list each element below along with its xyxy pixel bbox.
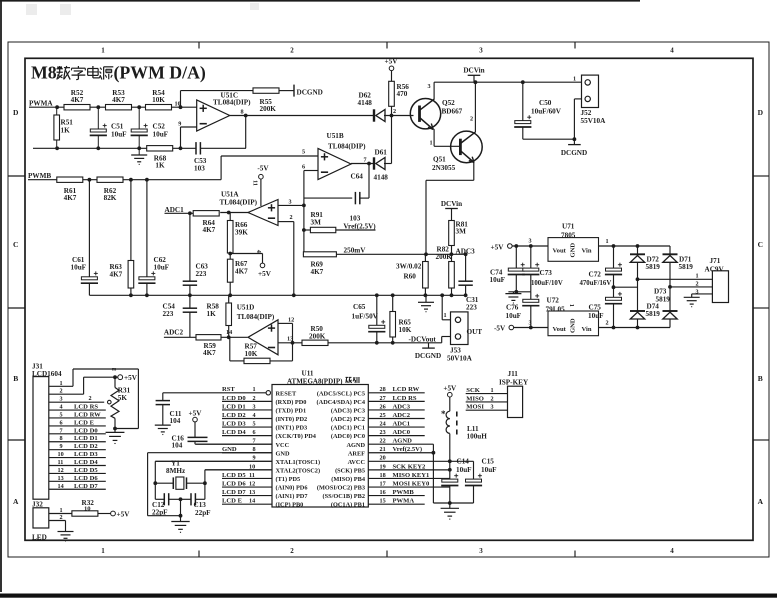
svg-text:100uF/10V: 100uF/10V xyxy=(531,280,563,287)
svg-text:C75: C75 xyxy=(589,303,602,311)
svg-text:1: 1 xyxy=(253,386,256,393)
svg-text:VCC: VCC xyxy=(276,442,290,449)
svg-text:LED: LED xyxy=(32,534,47,542)
svg-text:C73: C73 xyxy=(540,269,553,277)
svg-text:4K7: 4K7 xyxy=(71,96,84,104)
svg-text:Vref(2.5V): Vref(2.5V) xyxy=(343,222,376,230)
svg-text:4K7: 4K7 xyxy=(112,96,125,104)
svg-text:2: 2 xyxy=(60,514,63,521)
svg-text:U51B: U51B xyxy=(327,132,344,140)
svg-text:DCGND: DCGND xyxy=(415,352,441,360)
svg-text:(T1) PD5: (T1) PD5 xyxy=(276,476,301,483)
svg-text:+5V: +5V xyxy=(189,410,203,418)
svg-text:250mV: 250mV xyxy=(344,246,367,254)
svg-text:2: 2 xyxy=(470,116,473,123)
svg-text:4K7: 4K7 xyxy=(110,271,123,279)
svg-text:-DCVout: -DCVout xyxy=(409,336,437,344)
svg-text:ADC2: ADC2 xyxy=(164,329,184,337)
svg-text:SCK KEY2: SCK KEY2 xyxy=(393,463,426,470)
svg-text:C: C xyxy=(13,240,18,249)
svg-text:MISO: MISO xyxy=(466,395,484,402)
svg-text:C50: C50 xyxy=(539,99,552,107)
svg-text:LCD E: LCD E xyxy=(74,419,95,426)
svg-text:LCD D2: LCD D2 xyxy=(222,412,246,419)
svg-text:10: 10 xyxy=(175,100,181,107)
svg-text:U11: U11 xyxy=(302,370,314,378)
svg-text:ADC3: ADC3 xyxy=(393,403,411,410)
svg-text:Vref(2.5V): Vref(2.5V) xyxy=(393,446,423,453)
svg-text:16: 16 xyxy=(380,489,386,496)
svg-text:10: 10 xyxy=(58,451,64,458)
svg-text:Vin: Vin xyxy=(582,247,592,254)
svg-text:DCVin: DCVin xyxy=(463,67,484,75)
svg-text:104: 104 xyxy=(170,417,181,425)
svg-text:(XCK/T0) PD4: (XCK/T0) PD4 xyxy=(276,433,317,440)
svg-text:3: 3 xyxy=(479,47,483,55)
svg-text:LCD D3: LCD D3 xyxy=(222,420,246,427)
svg-text:GND: GND xyxy=(276,450,290,457)
svg-text:XTAL1(TOSC1): XTAL1(TOSC1) xyxy=(276,459,321,466)
svg-text:1K: 1K xyxy=(207,310,217,318)
svg-text:LCD D1: LCD D1 xyxy=(74,435,98,442)
svg-text:LCD D5: LCD D5 xyxy=(222,472,246,479)
svg-text:*: * xyxy=(441,409,446,419)
svg-text:XTAL2(TOSC2): XTAL2(TOSC2) xyxy=(276,467,321,474)
svg-text:3: 3 xyxy=(428,83,431,90)
svg-text:1: 1 xyxy=(101,47,105,55)
svg-text:7: 7 xyxy=(253,438,256,445)
svg-text:3: 3 xyxy=(529,238,532,245)
svg-text:RST: RST xyxy=(222,386,235,393)
svg-text:200K: 200K xyxy=(260,105,277,113)
svg-text:LCD D0: LCD D0 xyxy=(74,427,98,434)
svg-text:26: 26 xyxy=(380,403,386,410)
svg-text:Vout: Vout xyxy=(553,247,567,254)
svg-text:1K: 1K xyxy=(61,127,71,135)
svg-text:2: 2 xyxy=(290,47,294,55)
svg-text:2: 2 xyxy=(290,547,294,555)
svg-text:(PWM D/A): (PWM D/A) xyxy=(114,63,206,84)
svg-text:8: 8 xyxy=(60,435,63,442)
svg-text:PWMB: PWMB xyxy=(28,172,51,180)
svg-text:11: 11 xyxy=(251,180,258,186)
svg-text:13: 13 xyxy=(58,475,64,482)
svg-text:PWMA: PWMA xyxy=(29,100,53,108)
svg-text:3M: 3M xyxy=(456,228,467,236)
svg-text:R60: R60 xyxy=(404,273,417,281)
svg-text:(INT0) PD2: (INT0) PD2 xyxy=(276,416,308,423)
svg-text:3M: 3M xyxy=(311,218,322,226)
svg-text:1: 1 xyxy=(568,304,575,307)
svg-text:+5V: +5V xyxy=(491,243,505,251)
svg-text:10K: 10K xyxy=(399,326,412,334)
svg-text:DCVin: DCVin xyxy=(441,200,462,208)
svg-text:GND: GND xyxy=(570,318,577,333)
svg-text:4K7: 4K7 xyxy=(64,194,77,202)
svg-text:5819: 5819 xyxy=(646,310,661,318)
svg-text:223: 223 xyxy=(163,310,174,318)
svg-text:D: D xyxy=(13,108,19,117)
svg-text:LCD D4: LCD D4 xyxy=(74,459,98,466)
svg-text:7: 7 xyxy=(60,427,63,434)
svg-text:3W/0.02: 3W/0.02 xyxy=(396,263,422,271)
svg-text:C15: C15 xyxy=(482,458,495,466)
svg-text:55V10A: 55V10A xyxy=(581,117,607,125)
svg-text:LCD D4: LCD D4 xyxy=(222,429,246,436)
svg-text:4: 4 xyxy=(253,412,256,419)
svg-text:1: 1 xyxy=(60,380,63,387)
svg-text:14: 14 xyxy=(226,329,232,336)
svg-text:A: A xyxy=(758,497,764,506)
svg-text:TL084(DIP): TL084(DIP) xyxy=(237,313,275,321)
svg-text:ADC1: ADC1 xyxy=(393,420,411,427)
svg-text:200K: 200K xyxy=(436,253,453,261)
svg-text:8: 8 xyxy=(253,446,256,453)
svg-text:D: D xyxy=(758,108,764,117)
svg-text:223: 223 xyxy=(466,303,477,311)
svg-text:LCD D7: LCD D7 xyxy=(222,489,246,496)
svg-text:C72: C72 xyxy=(589,271,602,279)
svg-text:12: 12 xyxy=(249,480,255,487)
svg-text:2: 2 xyxy=(606,319,609,326)
svg-text:MISO KEY1: MISO KEY1 xyxy=(393,472,430,479)
svg-text:200K: 200K xyxy=(309,333,326,341)
svg-text:AVCC: AVCC xyxy=(348,459,366,466)
svg-text:ISP-KEY: ISP-KEY xyxy=(499,378,529,386)
svg-text:LCD D6: LCD D6 xyxy=(74,475,98,482)
svg-text:10uF: 10uF xyxy=(153,131,169,139)
svg-text:(ADC1) PC1: (ADC1) PC1 xyxy=(331,425,365,432)
svg-text:B: B xyxy=(758,374,763,383)
svg-text:LCD D6: LCD D6 xyxy=(222,480,246,487)
svg-text:4K7: 4K7 xyxy=(203,349,216,357)
svg-text:17: 17 xyxy=(380,480,386,487)
svg-text:(SS/OC1B) PB2: (SS/OC1B) PB2 xyxy=(322,493,365,500)
svg-text:5K: 5K xyxy=(118,394,128,402)
svg-text:TL084(DIP): TL084(DIP) xyxy=(328,142,366,150)
svg-text:103: 103 xyxy=(350,215,361,223)
svg-text:22: 22 xyxy=(380,438,386,445)
svg-text:3: 3 xyxy=(60,396,63,403)
svg-text:10uF: 10uF xyxy=(111,131,127,139)
svg-text:J53: J53 xyxy=(450,347,461,355)
svg-text:-5V: -5V xyxy=(257,165,269,173)
svg-text:4K7: 4K7 xyxy=(203,226,216,234)
svg-text:D61: D61 xyxy=(375,149,388,157)
svg-text:2: 2 xyxy=(60,388,63,395)
svg-text:LCD D5: LCD D5 xyxy=(74,467,98,474)
svg-text:1uF/50V: 1uF/50V xyxy=(352,313,379,321)
svg-text:+5V: +5V xyxy=(443,384,457,392)
svg-text:1: 1 xyxy=(60,507,63,514)
svg-text:SCK: SCK xyxy=(466,387,480,394)
svg-text:4K7: 4K7 xyxy=(311,268,324,276)
svg-text:+5V: +5V xyxy=(117,511,131,519)
svg-text:(INT1) PD3: (INT1) PD3 xyxy=(276,425,308,432)
svg-text:C51: C51 xyxy=(111,123,124,131)
svg-text:C12: C12 xyxy=(152,501,165,509)
svg-text:C14: C14 xyxy=(457,458,470,466)
svg-text:3: 3 xyxy=(253,403,256,410)
svg-text:2: 2 xyxy=(89,395,92,402)
svg-text:ADC3: ADC3 xyxy=(456,247,476,255)
svg-text:10uF: 10uF xyxy=(71,263,87,271)
svg-text:(OC1A) PB1: (OC1A) PB1 xyxy=(331,502,365,509)
svg-text:DCGND: DCGND xyxy=(297,89,323,97)
svg-text:+5V: +5V xyxy=(258,270,272,278)
svg-text:J52: J52 xyxy=(581,109,592,117)
svg-text:R51: R51 xyxy=(61,119,74,127)
svg-text:13: 13 xyxy=(287,336,293,343)
svg-text:1: 1 xyxy=(444,312,447,319)
svg-text:TL084(DIP): TL084(DIP) xyxy=(213,99,251,107)
svg-text:PWMB: PWMB xyxy=(393,489,415,496)
svg-text:4148: 4148 xyxy=(374,174,389,182)
svg-text:LCD RS: LCD RS xyxy=(74,404,98,411)
svg-text:U51D: U51D xyxy=(237,304,255,312)
svg-text:U72: U72 xyxy=(547,297,560,305)
svg-text:23: 23 xyxy=(380,429,386,436)
svg-text:10uF: 10uF xyxy=(490,276,506,284)
svg-text:10uF: 10uF xyxy=(456,466,472,474)
svg-text:4K7: 4K7 xyxy=(235,267,248,275)
svg-text:LCD RW: LCD RW xyxy=(74,411,101,418)
svg-text:(ADC4/SDA) PC4: (ADC4/SDA) PC4 xyxy=(317,399,366,406)
svg-text:22pF: 22pF xyxy=(152,509,168,517)
svg-text:10uF: 10uF xyxy=(481,466,497,474)
svg-text:AGND: AGND xyxy=(346,442,365,449)
svg-text:11: 11 xyxy=(58,459,64,466)
svg-text:3: 3 xyxy=(529,319,532,326)
svg-text:Q51: Q51 xyxy=(433,156,446,164)
svg-text:10: 10 xyxy=(84,505,91,512)
svg-text:LCD D1: LCD D1 xyxy=(222,403,246,410)
svg-text:J71: J71 xyxy=(710,257,721,265)
svg-text:LCD RW: LCD RW xyxy=(393,386,420,393)
svg-text:M8: M8 xyxy=(31,63,57,83)
svg-text:J11: J11 xyxy=(508,370,519,378)
svg-text:RESET: RESET xyxy=(276,390,297,397)
svg-text:8MHz: 8MHz xyxy=(166,467,186,475)
svg-text:28: 28 xyxy=(380,386,386,393)
svg-text:C64: C64 xyxy=(351,172,364,180)
svg-text:1: 1 xyxy=(696,272,699,279)
svg-text:2: 2 xyxy=(290,214,293,221)
svg-text:-5V: -5V xyxy=(494,325,506,333)
svg-text:LCD D2: LCD D2 xyxy=(74,443,98,450)
svg-text:470: 470 xyxy=(397,90,408,98)
svg-text:(TXD) PD1: (TXD) PD1 xyxy=(276,408,307,415)
svg-text:470uF/16V: 470uF/16V xyxy=(580,280,612,287)
svg-text:103: 103 xyxy=(194,164,205,172)
svg-text:223: 223 xyxy=(196,270,207,278)
svg-text:MOSI: MOSI xyxy=(466,404,484,411)
svg-text:TL084(DIP): TL084(DIP) xyxy=(220,199,258,207)
svg-text:+5V: +5V xyxy=(385,57,399,65)
svg-text:21: 21 xyxy=(380,446,386,453)
svg-text:C65: C65 xyxy=(353,303,366,311)
svg-text:1: 1 xyxy=(491,387,494,394)
svg-text:(AIN0) PD6: (AIN0) PD6 xyxy=(276,485,308,492)
svg-text:B: B xyxy=(13,374,18,383)
svg-text:20: 20 xyxy=(380,455,386,462)
svg-text:9: 9 xyxy=(60,443,63,450)
svg-text:4148: 4148 xyxy=(358,99,373,107)
svg-text:104: 104 xyxy=(172,442,183,450)
svg-text:MOSI KEY0: MOSI KEY0 xyxy=(393,480,431,487)
svg-text:3: 3 xyxy=(289,198,292,205)
svg-text:13: 13 xyxy=(249,489,255,496)
svg-text:4: 4 xyxy=(60,404,63,411)
svg-text:LCD D3: LCD D3 xyxy=(74,451,98,458)
svg-text:(MOSI/OC2) PB3: (MOSI/OC2) PB3 xyxy=(317,485,365,492)
svg-text:C76: C76 xyxy=(506,303,519,311)
svg-text:DCGND: DCGND xyxy=(561,149,587,157)
svg-text:GND: GND xyxy=(570,243,577,258)
svg-text:PWMA: PWMA xyxy=(393,498,415,505)
svg-text:3: 3 xyxy=(696,288,699,295)
svg-text:10uF/60V: 10uF/60V xyxy=(531,108,562,116)
svg-text:12: 12 xyxy=(288,316,294,323)
svg-text:10uF: 10uF xyxy=(588,312,604,320)
svg-text:5: 5 xyxy=(253,420,256,427)
svg-text:AREF: AREF xyxy=(348,450,365,457)
svg-text:1K: 1K xyxy=(155,162,165,170)
svg-text:ADC2: ADC2 xyxy=(393,412,411,419)
svg-text:(ADC2) PC2: (ADC2) PC2 xyxy=(331,416,365,423)
svg-text:11: 11 xyxy=(249,472,255,479)
svg-text:15: 15 xyxy=(380,498,386,505)
svg-text:OUT: OUT xyxy=(467,328,483,336)
svg-text:C: C xyxy=(758,240,763,249)
svg-text:(MISO) PB4: (MISO) PB4 xyxy=(331,476,366,483)
svg-text:R31: R31 xyxy=(118,386,131,394)
svg-text:LCD RS: LCD RS xyxy=(393,395,417,402)
svg-text:BD667: BD667 xyxy=(442,108,463,116)
svg-text:1: 1 xyxy=(573,76,576,83)
svg-text:18: 18 xyxy=(380,472,386,479)
svg-text:Vout: Vout xyxy=(553,326,567,333)
svg-text:9: 9 xyxy=(253,455,256,462)
svg-text:Q52: Q52 xyxy=(442,99,455,107)
svg-text:12: 12 xyxy=(58,467,64,474)
svg-text:2: 2 xyxy=(393,108,396,115)
svg-text:2: 2 xyxy=(253,395,256,402)
svg-text:100uH: 100uH xyxy=(467,433,488,441)
svg-text:ADC0: ADC0 xyxy=(393,429,411,436)
svg-text:D73: D73 xyxy=(654,288,667,296)
svg-text:22pF: 22pF xyxy=(195,509,211,517)
svg-text:14: 14 xyxy=(249,498,255,505)
svg-text:3: 3 xyxy=(491,404,494,411)
svg-text:10uF: 10uF xyxy=(506,312,522,320)
svg-text:4: 4 xyxy=(670,547,674,555)
svg-text:LCD D7: LCD D7 xyxy=(74,483,98,490)
svg-text:1: 1 xyxy=(430,140,433,147)
svg-text:1: 1 xyxy=(101,547,105,555)
svg-text:U51A: U51A xyxy=(221,190,239,198)
svg-text:A: A xyxy=(13,497,19,506)
svg-text:1: 1 xyxy=(606,238,609,245)
svg-text:5819: 5819 xyxy=(656,296,671,304)
svg-text:5: 5 xyxy=(60,411,63,418)
svg-text:27: 27 xyxy=(380,395,386,402)
svg-text:(RXD) PD0: (RXD) PD0 xyxy=(276,399,307,406)
svg-text:(AIN1) PD7: (AIN1) PD7 xyxy=(276,493,308,500)
svg-text:+5V: +5V xyxy=(124,374,138,382)
svg-text:(ADC3) PC3: (ADC3) PC3 xyxy=(331,408,365,415)
svg-text:8: 8 xyxy=(241,108,244,115)
svg-text:C52: C52 xyxy=(153,123,166,131)
svg-text:5: 5 xyxy=(302,149,305,156)
svg-text:7: 7 xyxy=(364,156,367,163)
svg-text:2: 2 xyxy=(696,280,699,287)
svg-text:LCD D0: LCD D0 xyxy=(222,395,246,402)
svg-text:3: 3 xyxy=(479,547,483,555)
svg-text:2: 2 xyxy=(491,395,494,402)
svg-text:82K: 82K xyxy=(104,194,117,202)
svg-text:10K: 10K xyxy=(152,96,165,104)
svg-text:(ICP) PB0: (ICP) PB0 xyxy=(276,502,304,509)
svg-text:10K: 10K xyxy=(245,350,258,358)
svg-text:(ADC5/SCL) PC5: (ADC5/SCL) PC5 xyxy=(317,390,365,397)
svg-text:(SCK) PB5: (SCK) PB5 xyxy=(335,467,365,474)
svg-text:C13: C13 xyxy=(194,501,207,509)
svg-text:6: 6 xyxy=(253,429,256,436)
svg-text:6: 6 xyxy=(60,419,63,426)
svg-text:AGND: AGND xyxy=(393,438,413,445)
svg-text:19: 19 xyxy=(380,463,386,470)
svg-text:4: 4 xyxy=(670,47,674,55)
svg-text:LCD E: LCD E xyxy=(222,498,243,505)
svg-text:GND: GND xyxy=(222,446,237,453)
svg-text:24: 24 xyxy=(380,420,386,427)
svg-text:(ADC0) PC0: (ADC0) PC0 xyxy=(331,433,365,440)
svg-text:4: 4 xyxy=(255,250,262,253)
svg-text:5819: 5819 xyxy=(679,263,694,271)
svg-text:5819: 5819 xyxy=(646,263,661,271)
svg-text:39K: 39K xyxy=(235,228,248,236)
svg-text:6: 6 xyxy=(302,163,305,170)
svg-text:50V10A: 50V10A xyxy=(447,355,473,363)
svg-text:10uF: 10uF xyxy=(154,263,170,271)
svg-text:2N3055: 2N3055 xyxy=(432,164,456,172)
svg-text:25: 25 xyxy=(380,412,386,419)
svg-text:U71: U71 xyxy=(562,223,575,231)
svg-text:14: 14 xyxy=(58,483,64,490)
svg-text:Vin: Vin xyxy=(582,326,592,333)
